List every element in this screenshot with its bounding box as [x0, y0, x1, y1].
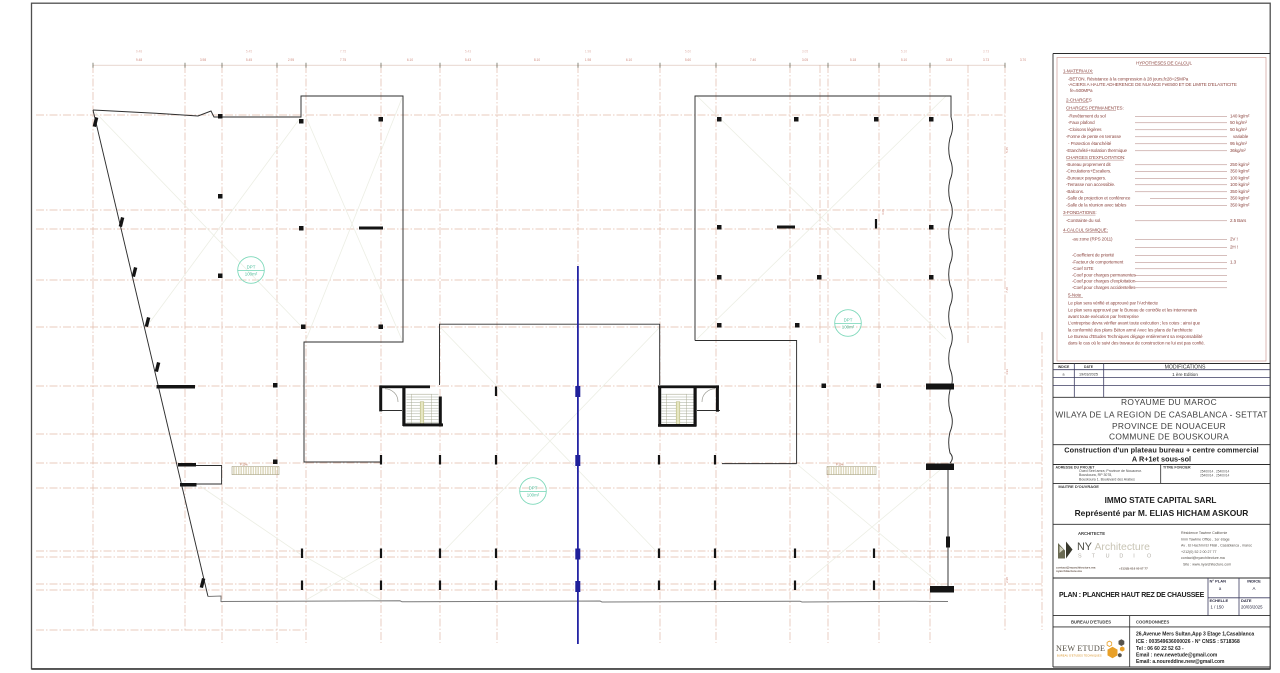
svg-text:4.93: 4.93: [1005, 369, 1009, 375]
svg-text:ECHELLE: ECHELLE: [1210, 598, 1229, 603]
svg-text:5.10: 5.10: [901, 58, 907, 62]
svg-text:- Protection étanchéité: - Protection étanchéité: [1068, 141, 1112, 146]
svg-text:3.70: 3.70: [1020, 58, 1026, 62]
svg-text:Représenté par M. ELIAS HICHAM: Représenté par M. ELIAS HICHAM ASKOUR: [1075, 508, 1249, 518]
svg-text:variable: variable: [1233, 134, 1249, 139]
svg-text:Site : www.nyarchitecture.com: Site : www.nyarchitecture.com: [1183, 563, 1231, 567]
svg-text:BUREAU D'ETUDES TECHNIQUES: BUREAU D'ETUDES TECHNIQUES: [1057, 653, 1102, 657]
svg-text:350 kg/m²: 350 kg/m²: [1230, 196, 1250, 201]
svg-text:-Coef.pour charges d'exploitat: -Coef.pour charges d'exploitation: [1072, 279, 1136, 284]
svg-text:19/03/2025: 19/03/2025: [1079, 373, 1098, 377]
svg-text:COORDONNEES: COORDONNEES: [1136, 619, 1169, 624]
svg-text:9.48: 9.48: [136, 50, 142, 54]
svg-text:Email : new.newetude@gmail.com: Email : new.newetude@gmail.com: [1136, 653, 1218, 659]
svg-text:50 kg/m²: 50 kg/m²: [1230, 127, 1247, 132]
svg-text:5.45: 5.45: [246, 50, 252, 54]
svg-text:5.43: 5.43: [465, 50, 471, 54]
svg-text:100m²: 100m²: [842, 325, 855, 330]
svg-text:-Etanchéité+Isolation thermiqu: -Etanchéité+Isolation thermique: [1066, 148, 1128, 153]
svg-text:5.45: 5.45: [246, 58, 252, 62]
svg-text:DATE: DATE: [1241, 598, 1252, 603]
svg-text:6.10: 6.10: [407, 58, 413, 62]
svg-text:2.5 Bars: 2.5 Bars: [1230, 218, 1247, 223]
svg-text:a: a: [1063, 373, 1065, 377]
svg-text:MAITRE D'OUVRAGE: MAITRE D'OUVRAGE: [1058, 484, 1099, 489]
svg-text:Résidence Tawime Californie: Résidence Tawime Californie: [1181, 531, 1227, 535]
svg-text:3.98: 3.98: [200, 58, 206, 62]
svg-text:3.73: 3.73: [983, 58, 989, 62]
svg-text:I: I: [1133, 554, 1135, 560]
svg-text:7.48: 7.48: [1005, 287, 1009, 293]
svg-text:2.98: 2.98: [1005, 577, 1009, 583]
svg-text:-Faux plafond: -Faux plafond: [1068, 120, 1095, 125]
svg-text:250 kg/m²: 250 kg/m²: [1230, 162, 1250, 167]
svg-text:5.45: 5.45: [1005, 147, 1009, 153]
svg-text:+212(0) 52 2 00 27 77: +212(0) 52 2 00 27 77: [1181, 550, 1216, 554]
svg-text:P:10%: P:10%: [240, 463, 248, 467]
svg-text:-Facteur de comportement: -Facteur de comportement: [1072, 260, 1124, 265]
svg-text:avant toute exécution par l'en: avant toute exécution par l'entreprise: [1068, 314, 1139, 319]
svg-text:-Cloisons légères: -Cloisons légères: [1068, 127, 1102, 132]
svg-text:P:10%: P:10%: [836, 463, 844, 467]
svg-text:dans le cas où le suivi des tr: dans le cas où le suivi des travaux de c…: [1068, 341, 1205, 346]
svg-text:-Coef.pour charges accidentell: -Coef.pour charges accidentelles: [1072, 285, 1136, 290]
svg-text:1.98: 1.98: [585, 58, 591, 62]
svg-text:-Bureau proprement dit: -Bureau proprement dit: [1066, 162, 1111, 167]
svg-text:PROVINCE DE NOUACEUR: PROVINCE DE NOUACEUR: [1112, 421, 1226, 431]
svg-text:5.10: 5.10: [901, 50, 907, 54]
svg-text:DATE: DATE: [1084, 365, 1094, 369]
svg-text:COMMUNE DE BOUSKOURA: COMMUNE DE BOUSKOURA: [1109, 431, 1229, 441]
svg-text:2V !: 2V !: [1230, 237, 1238, 242]
svg-text:BUREAU D'ETUDES: BUREAU D'ETUDES: [1071, 619, 1111, 624]
svg-text:fe=500MPa: fe=500MPa: [1070, 88, 1093, 93]
svg-text:3-FONDATIONS:: 3-FONDATIONS:: [1063, 210, 1096, 215]
svg-text:contact@nyarchitecture.ma: contact@nyarchitecture.ma: [1181, 556, 1225, 560]
svg-text:5.60: 5.60: [685, 58, 691, 62]
svg-text:DPT: DPT: [844, 318, 853, 323]
svg-text:S: S: [1078, 554, 1082, 560]
svg-text:350 kg/m²: 350 kg/m²: [1230, 169, 1250, 174]
svg-text:MODIFICATIONS: MODIFICATIONS: [1165, 364, 1206, 370]
svg-text:50 kg/m²: 50 kg/m²: [1230, 120, 1247, 125]
svg-text:100 kg/m²: 100 kg/m²: [1230, 176, 1250, 181]
svg-text:2H !: 2H !: [1230, 245, 1238, 250]
svg-text:-Salle de projection et confér: -Salle de projection et conférence: [1066, 196, 1131, 201]
svg-text:3.73: 3.73: [983, 50, 989, 54]
svg-text:A: A: [1253, 586, 1256, 591]
svg-text:O: O: [1147, 554, 1151, 560]
svg-text:DPT: DPT: [529, 486, 538, 491]
svg-text:1.3: 1.3: [1230, 260, 1237, 265]
svg-text:350 kg/m²: 350 kg/m²: [1230, 203, 1250, 208]
svg-text:NEW ETUDE: NEW ETUDE: [1056, 644, 1105, 653]
svg-text:8.10: 8.10: [534, 58, 540, 62]
svg-text:1 ère Edition: 1 ère Edition: [1172, 372, 1198, 377]
svg-text:5.60: 5.60: [685, 50, 691, 54]
svg-text:Construction d'un plateau bure: Construction d'un plateau bureau + centr…: [1064, 446, 1258, 455]
svg-text:U: U: [1106, 554, 1110, 560]
svg-text:1.98: 1.98: [585, 50, 591, 54]
svg-text:IMMO STATE CAPITAL SARL: IMMO STATE CAPITAL SARL: [1105, 496, 1217, 505]
svg-text:36kg/m²: 36kg/m²: [1230, 148, 1246, 153]
svg-text:CHARGES PERMANENTES:: CHARGES PERMANENTES:: [1066, 106, 1124, 111]
svg-text:ARCHITECTE: ARCHITECTE: [1078, 531, 1105, 536]
svg-text:20/03/2025: 20/03/2025: [1241, 604, 1263, 609]
svg-text:INDICE: INDICE: [1058, 365, 1070, 369]
svg-text:7.75: 7.75: [340, 50, 346, 54]
svg-text:la conformité des plans Béton: la conformité des plans Béton armé Avec …: [1068, 328, 1193, 333]
svg-text:9.48: 9.48: [136, 58, 142, 62]
svg-text:3.05: 3.05: [802, 50, 808, 54]
svg-text:Av . El Hachmi El Filali , Cas: Av . El Hachmi El Filali , Casablanca , …: [1181, 544, 1252, 548]
svg-text:Architecture: Architecture: [1095, 542, 1151, 553]
svg-text:7.40: 7.40: [750, 58, 756, 62]
svg-text:100m²: 100m²: [245, 272, 258, 277]
svg-text:nyarchitecture.ma: nyarchitecture.ma: [1056, 569, 1082, 573]
svg-text:140 kg/m²: 140 kg/m²: [1230, 114, 1250, 119]
svg-text:A R+1et sous-sol: A R+1et sous-sol: [1132, 455, 1191, 464]
svg-text:26,Avenue Mers Sultan,App 3 Et: 26,Avenue Mers Sultan,App 3 Etage 1,Casa…: [1136, 632, 1254, 638]
svg-text:Bouskoura 1. Boulevard des Ara: Bouskoura 1. Boulevard des Arabes: [1079, 477, 1135, 481]
svg-text:-Coef SITE: -Coef SITE: [1072, 266, 1094, 271]
svg-text:-BETON. Résistance à la compre: -BETON. Résistance à la compression à 28…: [1068, 77, 1189, 82]
svg-text:-Forme de pente en terrasse: -Forme de pente en terrasse: [1066, 134, 1121, 139]
svg-text:ICE : 003549636000026 - N° CNS: ICE : 003549636000026 - N° CNSS : 571836…: [1136, 639, 1240, 645]
svg-text:7.75: 7.75: [340, 58, 346, 62]
svg-text:-Coef pour charges permanentes: -Coef pour charges permanentes: [1072, 273, 1137, 278]
svg-text:N° PLAN: N° PLAN: [1210, 579, 1227, 584]
svg-text:4-CALCUL SISMIQUE:: 4-CALCUL SISMIQUE:: [1063, 228, 1108, 233]
svg-text:5.43: 5.43: [465, 58, 471, 62]
svg-text:Tel : 06 60 22 52 63 -: Tel : 06 60 22 52 63 -: [1136, 646, 1184, 652]
svg-text:D: D: [1119, 554, 1123, 560]
svg-text:ROYAUME DU MAROC: ROYAUME DU MAROC: [1121, 397, 1217, 407]
svg-text:TITRE FONCIER: TITRE FONCIER: [1163, 466, 1191, 470]
svg-text:-Bureaux paysagers.: -Bureaux paysagers.: [1066, 176, 1106, 181]
svg-text:-Salle de la réunion avec tabl: -Salle de la réunion avec tables: [1066, 203, 1127, 208]
svg-text:Email: a.noureddine.new@gmail.: Email: a.noureddine.new@gmail.com: [1136, 659, 1225, 665]
svg-text:350 kg/m²: 350 kg/m²: [1230, 189, 1250, 194]
svg-text:100 kg/m²: 100 kg/m²: [1230, 182, 1250, 187]
svg-text:-Terrasse non accessible.: -Terrasse non accessible.: [1066, 182, 1115, 187]
svg-text:Le Bureau d'Etudes Techniques: Le Bureau d'Etudes Techniques dégage ent…: [1068, 334, 1203, 339]
svg-text:+212(0) 616 00 07 77: +212(0) 616 00 07 77: [1119, 567, 1148, 571]
svg-text:INDICE: INDICE: [1247, 579, 1261, 584]
svg-text:3.83: 3.83: [946, 58, 952, 62]
svg-text:DPT: DPT: [247, 265, 256, 270]
svg-text:2.95: 2.95: [288, 58, 294, 62]
svg-text:PLAN : PLANCHER HAUT REZ DE CH: PLAN : PLANCHER HAUT REZ DE CHAUSSEE: [1059, 592, 1205, 599]
svg-text:-Balcons.: -Balcons.: [1066, 189, 1084, 194]
svg-text:3.05: 3.05: [881, 209, 885, 215]
svg-text:Imm Tawime Office , 1er étage: Imm Tawime Office , 1er étage: [1181, 537, 1230, 541]
svg-text:-Contrainte du sol.: -Contrainte du sol.: [1066, 218, 1101, 223]
svg-text:25400/14 . 25400/14: 25400/14 . 25400/14: [1200, 473, 1229, 477]
svg-text:95 kg/m²: 95 kg/m²: [1230, 141, 1247, 146]
svg-text:5-Note: 5-Note: [1068, 293, 1082, 298]
svg-text:100m²: 100m²: [527, 493, 540, 498]
svg-text:6.10: 6.10: [626, 58, 632, 62]
svg-text:3.05: 3.05: [802, 58, 808, 62]
svg-text:-ACIERS A HAUTE ADHERENCE DE N: -ACIERS A HAUTE ADHERENCE DE NUANCE FeE5…: [1068, 82, 1237, 87]
svg-text:WILAYA DE LA REGION DE CASABLA: WILAYA DE LA REGION DE CASABLANCA - SETT…: [1055, 409, 1267, 419]
svg-text:5.18: 5.18: [850, 58, 856, 62]
svg-text:-Circulations+Escaliers.: -Circulations+Escaliers.: [1066, 169, 1111, 174]
svg-text:NY: NY: [1077, 541, 1092, 553]
svg-text:-Revêtement du sol: -Revêtement du sol: [1068, 114, 1106, 119]
svg-text:Le plan sera vérifié et approu: Le plan sera vérifié et approuvé par l'A…: [1068, 301, 1159, 306]
svg-text:CHARGES D'EXPLOITATION:: CHARGES D'EXPLOITATION:: [1066, 155, 1125, 160]
svg-text:L'entreprise devra vérifier av: L'entreprise devra vérifier avant toute …: [1068, 321, 1201, 326]
svg-text:1-MATERIAUX:: 1-MATERIAUX:: [1063, 69, 1093, 74]
svg-text:HYPOTHESES DE CALCUL: HYPOTHESES DE CALCUL: [1136, 61, 1192, 66]
svg-text:Le plan sera approuvé par le B: Le plan sera approuvé par le Bureau de c…: [1068, 308, 1198, 313]
svg-text:2-CHARGES: 2-CHARGES: [1066, 98, 1092, 103]
svg-text:-Coefficient de priorité: -Coefficient de priorité: [1072, 253, 1115, 258]
svg-text:1 / 150: 1 / 150: [1211, 604, 1225, 609]
svg-text:-au zone (RPS 2011): -au zone (RPS 2011): [1072, 237, 1113, 242]
